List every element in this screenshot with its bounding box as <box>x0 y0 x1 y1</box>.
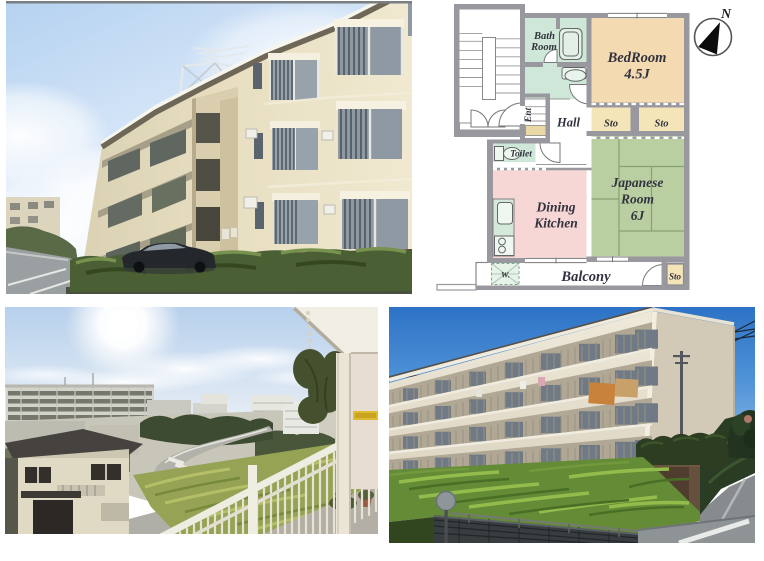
svg-text:N: N <box>720 7 732 22</box>
svg-text:4.5J: 4.5J <box>623 67 650 83</box>
svg-text:Toilet: Toilet <box>510 150 532 160</box>
svg-text:W.: W. <box>501 270 510 280</box>
svg-text:Sto: Sto <box>654 119 668 130</box>
svg-text:Balcony: Balcony <box>560 269 611 285</box>
svg-text:Sto: Sto <box>604 119 618 130</box>
svg-text:Hall: Hall <box>556 116 580 130</box>
svg-text:Ent: Ent <box>524 108 534 124</box>
svg-text:Japanese: Japanese <box>611 175 664 190</box>
svg-text:BedRoom: BedRoom <box>607 50 667 66</box>
svg-text:Kitchen: Kitchen <box>533 216 578 231</box>
svg-text:Room: Room <box>530 42 557 53</box>
svg-text:Dining: Dining <box>535 200 575 215</box>
svg-text:6J: 6J <box>631 208 646 223</box>
svg-text:Sto: Sto <box>669 272 682 282</box>
svg-text:Bath: Bath <box>533 31 555 42</box>
svg-text:Room: Room <box>620 192 654 207</box>
